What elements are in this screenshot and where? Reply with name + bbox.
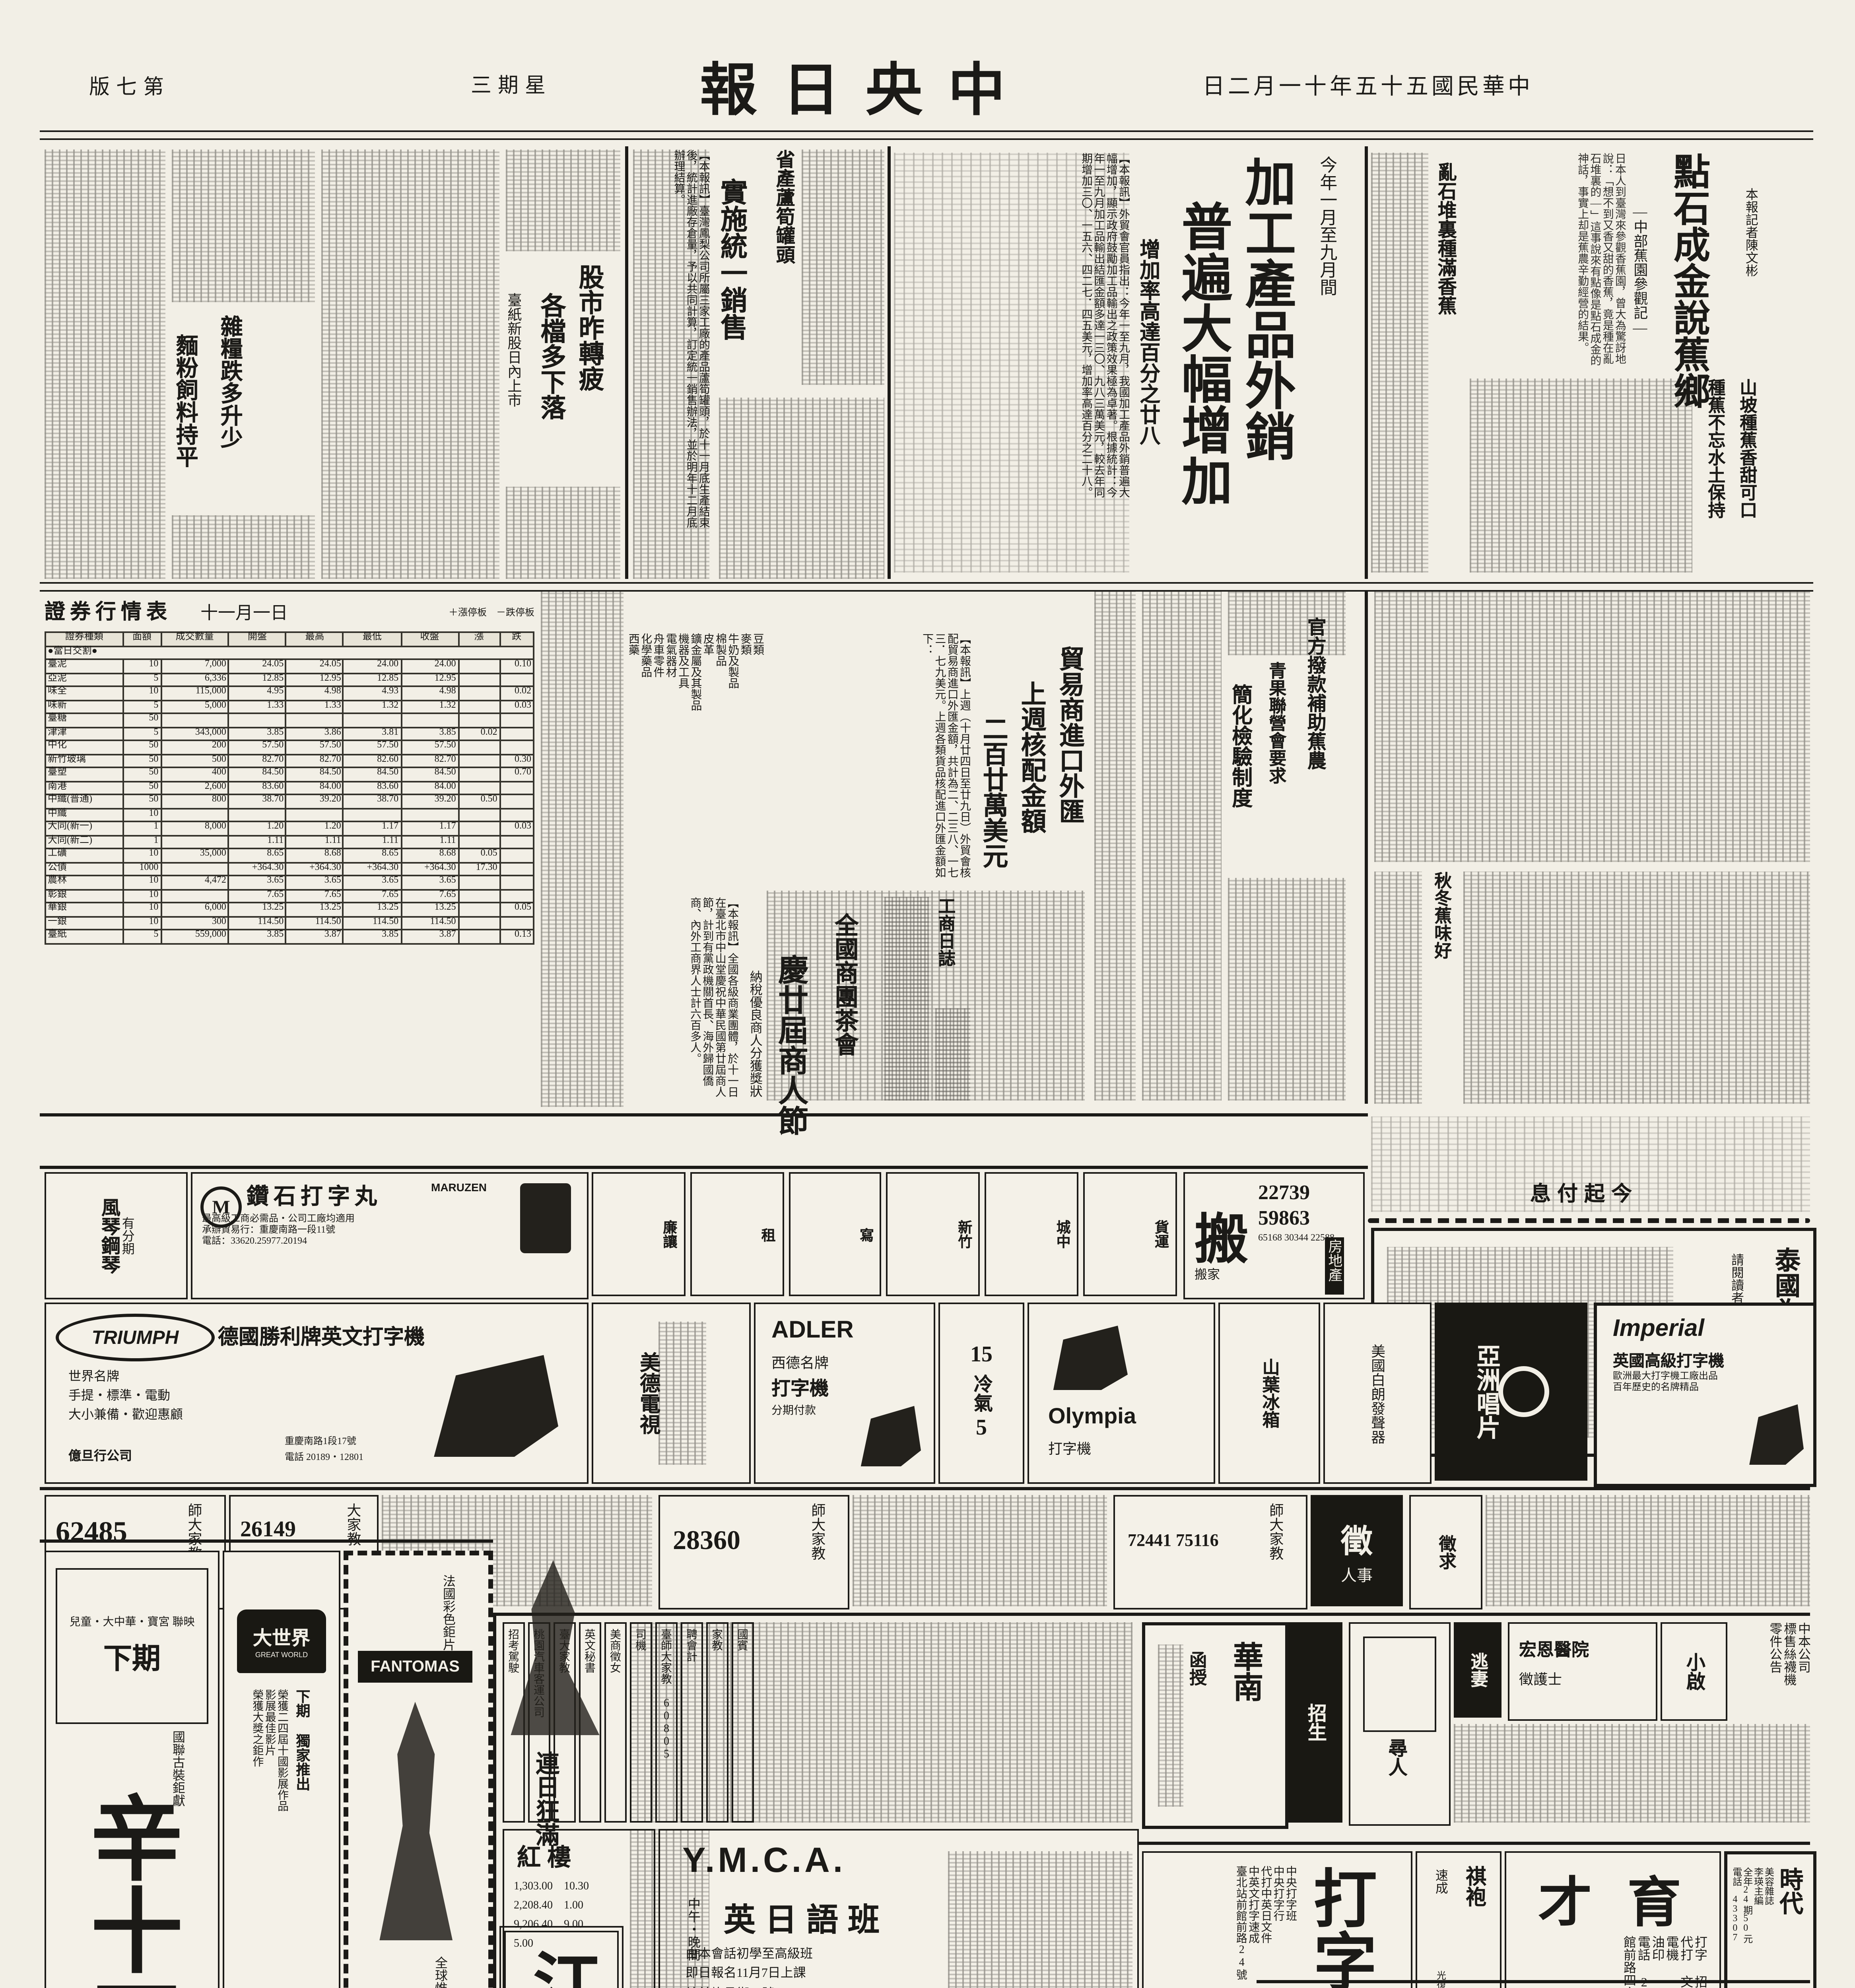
xin-theaters: 兒童・大中華・寶宮 聯映 bbox=[70, 1614, 195, 1630]
imperial-brand: Imperial bbox=[1613, 1315, 1704, 1342]
stockmkt-title-1: 股市昨轉疲 bbox=[573, 264, 601, 429]
band-rule bbox=[40, 1487, 1810, 1489]
texture bbox=[1228, 592, 1346, 655]
asparagus-texture-3 bbox=[802, 149, 884, 385]
texture bbox=[1158, 1644, 1183, 1807]
fridge-title: 山葉冰箱 bbox=[1259, 1320, 1279, 1466]
zhaosheng-label: 招生 bbox=[1305, 1675, 1326, 1770]
olympia-brand: Olympia bbox=[1048, 1403, 1136, 1428]
list-item: 承辦貿易行：重慶南路一段11號 bbox=[202, 1227, 514, 1238]
texture bbox=[1374, 872, 1422, 1104]
banana-texture-2 bbox=[1470, 379, 1692, 573]
banana-byline: 本報記者陳文彬 bbox=[1743, 188, 1758, 363]
table-header-cell: 收盤 bbox=[401, 632, 458, 646]
speaker-title: 美國白朗發聲器 bbox=[1369, 1317, 1385, 1470]
export-title-1: 加工產品外銷 bbox=[1237, 156, 1294, 534]
movers-phone-2: 59863 bbox=[1258, 1206, 1310, 1231]
list-item: 中央打字行 bbox=[1271, 1866, 1284, 1988]
missing-person-photo bbox=[1363, 1637, 1436, 1732]
banana-subhead-4: 官方撥款補助蕉農 bbox=[1304, 617, 1326, 830]
list-item: 電話：33620.25977.20194 bbox=[202, 1238, 514, 1250]
list-item: 代打中英日文件 bbox=[1259, 1866, 1271, 1988]
table-header-cell: 最高 bbox=[286, 632, 343, 646]
export-title-2: 普遍大幅增加 bbox=[1174, 200, 1231, 579]
table-row: 一銀10300114.50114.50114.50114.50 bbox=[45, 916, 534, 930]
list-item: 寫 bbox=[789, 1172, 882, 1296]
texture bbox=[884, 897, 929, 1101]
table-row: 公債1000+364.30+364.30+364.30+364.3017.30 bbox=[45, 862, 534, 876]
list-item: 李瑛主編 bbox=[1750, 1867, 1761, 1988]
typewriter-icon bbox=[1045, 1320, 1128, 1390]
aircon-n2: 5 bbox=[976, 1417, 987, 1442]
table-row: 味新55,0001.331.331.321.320.03 bbox=[45, 700, 534, 713]
world-lines: 榮獲二四屆十國影展作品影展最佳影片榮獲大獎之鉅作 bbox=[237, 1689, 288, 1975]
table-header-cell: 開盤 bbox=[229, 632, 286, 646]
grains-title-2: 麵粉飼料持平 bbox=[172, 334, 197, 509]
texture bbox=[1374, 592, 1810, 862]
grains-title-1: 雜糧跌多升少 bbox=[216, 315, 241, 490]
list-item: 廉讓 bbox=[592, 1172, 685, 1296]
texture bbox=[1486, 1495, 1810, 1606]
movie-ad-xin: 兒童・大中華・寶宮 聯映 下期 國聯古裝鉅獻 辛十四娘 bbox=[45, 1551, 219, 1988]
banana-subhead-3: 種蕉不忘水土保持 bbox=[1705, 379, 1725, 550]
movers-tag: 搬家 bbox=[1195, 1266, 1220, 1283]
band-rule bbox=[1257, 1980, 1810, 1982]
triumph-phone: 電話 20189・12801 bbox=[285, 1454, 363, 1465]
hongen-ad: 宏恩醫院 徵護士 bbox=[1508, 1622, 1657, 1721]
table-row: 新竹玻璃5050082.7082.7082.6082.700.30 bbox=[45, 754, 534, 767]
table-header-cell: 漲 bbox=[458, 632, 500, 646]
table-row: 大同(新一)18,0001.201.201.171.170.03 bbox=[45, 821, 534, 835]
list-item: 世界名牌 bbox=[68, 1368, 183, 1387]
table-row: 亞泥56,33612.8512.9512.8512.95 bbox=[45, 673, 534, 686]
table-header-cell: 成交數量 bbox=[161, 632, 228, 646]
classified-tutor-4: 師大家教 72441 75116 bbox=[1113, 1495, 1307, 1609]
tutor-label: 師大家教 bbox=[810, 1503, 826, 1598]
asparagus-texture-2 bbox=[719, 398, 884, 579]
stockmkt-texture bbox=[506, 487, 620, 579]
list-item: 影展最佳影片 bbox=[263, 1689, 275, 1975]
stock-table: 證券種類面額成交數量開盤最高最低收盤漲跌 ●當日交割●臺泥107,00024.0… bbox=[45, 631, 534, 944]
adler-brand: ADLER bbox=[771, 1317, 854, 1344]
shidai-ad: 時代 美容雜誌李瑛主編全年24期50元電話 43307 bbox=[1724, 1851, 1816, 1988]
table-row: 中化5020057.5057.5057.5057.50 bbox=[45, 740, 534, 754]
ad-imperial: Imperial 英國高級打字機 歐洲最大打字機工廠出品百年歷史的名牌精品 bbox=[1594, 1303, 1816, 1487]
texture bbox=[630, 1622, 1132, 1823]
table-row: 中纖10 bbox=[45, 808, 534, 821]
maruzen-brand: MARUZEN bbox=[431, 1183, 487, 1194]
forex-intro: 【本報訊】上週（十月廿四日至廿九日）外貿會核配貿易商進口外匯金額，共計為二、二三… bbox=[767, 633, 970, 887]
maruzen-lines: 最高級工商必需品・公司工廠均適用承辦貿易行：重慶南路一段11號電話：33620.… bbox=[202, 1215, 514, 1249]
figure-silhouette bbox=[506, 1560, 604, 1735]
banana-subhead-5: 秋冬蕉味好 bbox=[1432, 872, 1451, 1008]
list-item: 城中 bbox=[985, 1172, 1078, 1296]
maruzen-title: 鑽石打字丸 bbox=[247, 1180, 382, 1212]
table-row: 津津5343,0003.853.863.813.850.02 bbox=[45, 727, 534, 740]
movers-realestate: 房地產 bbox=[1325, 1237, 1344, 1295]
list-item: 全年24期50元 bbox=[1740, 1867, 1750, 1988]
triumph-title: 德國勝利牌英文打字機 bbox=[218, 1320, 425, 1350]
texture bbox=[541, 592, 624, 1107]
stock-table-note: ＋漲停板 －跌停板 bbox=[449, 604, 534, 619]
banana-subhead-2: 山坡種蕉香甜可口 bbox=[1737, 379, 1756, 550]
texture bbox=[1228, 878, 1346, 1101]
masthead-rule bbox=[40, 130, 1813, 140]
list-item: 中央打字班 bbox=[1284, 1866, 1296, 1988]
table-row: 臺糖50 bbox=[45, 713, 534, 727]
table-row: 工礦1035,0008.658.688.658.680.05 bbox=[45, 848, 534, 862]
hongen-sub: 徵護士 bbox=[1519, 1668, 1562, 1689]
world-logo: 大世界 GREAT WORLD bbox=[237, 1609, 326, 1673]
band-rule bbox=[40, 582, 1813, 592]
classified-tutor-3: 師大家教 28360 bbox=[658, 1495, 849, 1609]
export-kicker: 今年一月至九月間 bbox=[1317, 156, 1336, 350]
texture bbox=[948, 1851, 1132, 1988]
merchants-title-2: 慶廿屆商人節 bbox=[773, 954, 807, 1193]
texture bbox=[1142, 592, 1222, 1101]
texture bbox=[1094, 592, 1136, 1101]
triumph-logo: TRIUMPH bbox=[56, 1314, 215, 1361]
piano-ad-note: 有分期 bbox=[120, 1204, 134, 1268]
list-item: 手提・標準・電動 bbox=[68, 1387, 183, 1406]
texture bbox=[935, 1008, 970, 1101]
table-row: 南港502,60083.6084.0083.6084.00 bbox=[45, 781, 534, 794]
ad-fridge: 山葉冰箱 bbox=[1218, 1303, 1320, 1484]
taoqi-ad: 逃妻 bbox=[1454, 1622, 1501, 1718]
export-subtitle: 增加率高達百分之廿八 bbox=[1136, 239, 1159, 493]
ad-adler: ADLER 西德名牌 打字機 分期付款 bbox=[754, 1303, 935, 1484]
ymca-sub: 英日語班 bbox=[724, 1894, 889, 1940]
xunren-ad: 尋人 bbox=[1349, 1622, 1451, 1826]
seek-label: 徵求 bbox=[1436, 1512, 1455, 1592]
fruit-title-2: 簡化檢驗制度 bbox=[1228, 684, 1251, 862]
wavy-rule bbox=[1368, 1218, 1810, 1223]
qipao-ad: 祺袍 速成 光復南路13巷 bbox=[1416, 1851, 1501, 1988]
merchants-title-1: 全國商團茶會 bbox=[830, 913, 857, 1101]
adler-line-2: 打字機 bbox=[771, 1374, 829, 1401]
ad-piano: 風琴鋼琴 有分期 bbox=[45, 1172, 188, 1299]
world-logo-en: GREAT WORLD bbox=[255, 1651, 308, 1659]
page-weekday: 三期星 bbox=[471, 68, 552, 99]
column-rule bbox=[1365, 592, 1367, 1104]
list-item: 臺北站前館前路24號 bbox=[1234, 1866, 1246, 1988]
table-row: 農林104,4723.653.653.653.65 bbox=[45, 876, 534, 889]
zhaosheng-ad: 招生 bbox=[1288, 1622, 1342, 1823]
texture bbox=[172, 149, 315, 302]
forex-title-1: 貿易商進口外匯 bbox=[1053, 646, 1082, 868]
list-item: 租 bbox=[690, 1172, 783, 1296]
stock-table-block: 證券行情表 十一月一日 ＋漲停板 －跌停板 證券種類面額成交數量開盤最高最低收盤… bbox=[45, 595, 534, 1107]
asparagus-title-1: 省產蘆筍罐頭 bbox=[773, 149, 794, 296]
texture bbox=[321, 149, 499, 579]
record-icon bbox=[1499, 1366, 1550, 1417]
table-section-row: ●當日交割● bbox=[45, 646, 534, 659]
texture bbox=[1371, 1116, 1810, 1212]
band-rule bbox=[1139, 1842, 1810, 1845]
texture bbox=[853, 1495, 1107, 1606]
xiaoqi-label: 小啟 bbox=[1683, 1640, 1705, 1703]
movers-big: 搬 bbox=[1195, 1196, 1249, 1274]
table-header-cell: 面額 bbox=[123, 632, 161, 646]
typewriter-icon bbox=[1743, 1401, 1804, 1465]
merchants-sub: 納稅優良商人分獲獎狀 bbox=[748, 970, 762, 1161]
table-row: 彰銀107.657.657.657.65 bbox=[45, 889, 534, 903]
ad-small-strip: 廉讓租寫新竹城中貨運 bbox=[592, 1172, 1177, 1296]
ad-tv: 美德電視 bbox=[592, 1303, 751, 1484]
xunren-label: 尋人 bbox=[1385, 1738, 1407, 1808]
tutor-phone: 72441 75116 bbox=[1128, 1532, 1219, 1551]
world-logo-cn: 大世界 bbox=[253, 1624, 310, 1651]
movie-ad-world: 大世界 GREAT WORLD 下期 獨家推出 榮獲二四屆十國影展作品影展最佳影… bbox=[223, 1551, 340, 1988]
olympia-line: 打字機 bbox=[1048, 1438, 1091, 1458]
table-row: 大同(新二)11.111.111.111.11 bbox=[45, 835, 534, 848]
list-item: 大小兼備・歡迎惠顧 bbox=[68, 1406, 183, 1425]
list-item: 貨運 bbox=[1084, 1172, 1177, 1296]
asparagus-body: 【本報訊】臺灣鳳梨公司所屬三家工廠的產品蘆筍罐頭，於十一月底生產結束後，統計進廠… bbox=[633, 149, 709, 531]
list-item: 零件公告 bbox=[1768, 1622, 1782, 1823]
taoqi-label: 逃妻 bbox=[1468, 1635, 1487, 1705]
asparagus-title-2: 實施統一銷售 bbox=[716, 178, 746, 379]
asia-title: 亞洲唱片 bbox=[1472, 1325, 1499, 1458]
table-header-row: 證券種類面額成交數量開盤最高最低收盤漲跌 bbox=[45, 632, 534, 646]
aircon-n1: 15 bbox=[970, 1344, 993, 1369]
stock-table-date: 十一月一日 bbox=[200, 604, 288, 623]
triumph-addr: 重慶南路1段17號 bbox=[285, 1438, 356, 1449]
dazi-lines: 中央打字班中央打字行代打中英日文件中英文打字速成臺北站前館前路24號 bbox=[1156, 1866, 1296, 1988]
list-item: 電話 43307 bbox=[1729, 1867, 1740, 1988]
movie-ad-jianghan: 連日狂滿 江漢風雲 bbox=[490, 1551, 624, 1988]
ad-maruzen: M 鑽石打字丸 MARUZEN 最高級工商必需品・公司工廠均適用承辦貿易行：重慶… bbox=[191, 1172, 589, 1299]
page-edition: 版七第 bbox=[89, 70, 170, 100]
movers-phone-1: 22739 bbox=[1258, 1180, 1310, 1206]
marquee-border: 江漢風雲 bbox=[499, 1926, 624, 1988]
band-rule bbox=[40, 1166, 1368, 1169]
ad-speaker: 美國白朗發聲器 bbox=[1323, 1303, 1432, 1484]
texture bbox=[45, 149, 165, 579]
hiring-big: 徵 bbox=[1341, 1516, 1373, 1562]
xiaoqi-ad: 小啟 bbox=[1661, 1622, 1727, 1721]
list-item: 百年歷史的名牌精品 bbox=[1613, 1384, 1740, 1396]
imperial-title: 英國高級打字機 bbox=[1613, 1347, 1724, 1371]
ad-movers: 搬 22739 59863 65168 30344 22588 房地產 搬家 bbox=[1183, 1172, 1365, 1299]
list-item: 最高級工商必需品・公司工廠均適用 bbox=[202, 1215, 514, 1227]
list-item: 中英文打字速成 bbox=[1247, 1866, 1259, 1988]
dazi-title: 打字 bbox=[1303, 1866, 1374, 1988]
stock-table-title: 證券行情表 bbox=[45, 600, 172, 623]
list-item: 中本公司 bbox=[1796, 1622, 1810, 1823]
huanan-title: 華南 bbox=[1228, 1641, 1262, 1769]
texture bbox=[172, 515, 315, 579]
ad-triumph: TRIUMPH 德國勝利牌英文打字機 世界名牌手提・標準・電動大小兼備・歡迎惠顧… bbox=[45, 1303, 589, 1484]
stockmkt-sub: 臺紙新股日內上市 bbox=[506, 293, 522, 477]
stockmkt-title-2: 各檔多下落 bbox=[534, 293, 563, 458]
fantomas-logo: FANTOMAS bbox=[358, 1651, 472, 1683]
tutor-phone: 62485 bbox=[56, 1516, 127, 1549]
ad-asia-records: 亞洲唱片 bbox=[1435, 1303, 1587, 1481]
table-row: 中纖(普通)5080038.7039.2038.7039.200.50 bbox=[45, 794, 534, 808]
shidai-title: 時代 bbox=[1775, 1867, 1802, 1947]
adler-line-3: 分期付款 bbox=[771, 1403, 816, 1419]
list-item: 新竹 bbox=[887, 1172, 980, 1296]
huanan-ad: 華南 函授 bbox=[1142, 1622, 1288, 1829]
band-rule bbox=[493, 1613, 1810, 1615]
table-header-cell: 證券種類 bbox=[45, 632, 123, 646]
diary-title: 工商日誌 bbox=[935, 897, 955, 999]
classified-hiring: 徵 人事 bbox=[1311, 1495, 1403, 1606]
merchants-body: 【本報訊】全國各級商業團體，於十一日在臺北市中山堂慶祝中華民國第廿屆商人節，計到… bbox=[633, 897, 738, 1101]
export-body: 【本報訊】外貿會官員指出：今年一至九月，我國加工產品外銷普遍大幅增加，顯示政府鼓… bbox=[894, 153, 1129, 499]
texture bbox=[506, 149, 620, 251]
qipao-line: 速成 bbox=[1433, 1869, 1447, 1964]
imperial-lines: 歐洲最大打字機工廠出品百年歷史的名牌精品 bbox=[1613, 1373, 1740, 1396]
table-row: 臺泥107,00024.0524.0524.0024.000.10 bbox=[45, 659, 534, 673]
typewriter-icon bbox=[854, 1403, 921, 1466]
triumph-dealer: 億旦行公司 bbox=[68, 1447, 132, 1465]
masthead: 報日央中 bbox=[643, 45, 1088, 127]
column-rule bbox=[888, 146, 890, 579]
band-rule bbox=[40, 1540, 493, 1543]
typewriter-icon bbox=[412, 1355, 558, 1457]
table-row: 臺塑5040084.5084.5084.5084.500.70 bbox=[45, 767, 534, 781]
list-item: 美容雜誌 bbox=[1761, 1867, 1772, 1988]
texture bbox=[630, 1829, 709, 1988]
shidai-lines: 美容雜誌李瑛主編全年24期50元電話 43307 bbox=[1737, 1867, 1772, 1988]
list-item: 標售絲襪機 bbox=[1781, 1622, 1796, 1823]
world-kicker: 下期 獨家推出 bbox=[294, 1689, 310, 1832]
classified-seek: 徵求 bbox=[1409, 1495, 1482, 1609]
banana-body: 日本人到臺灣來參觀香蕉園，曾大為驚訝地說：「想不到又香又甜的香蕉，竟是種在亂石堆… bbox=[1470, 153, 1626, 366]
hongen-title: 宏恩醫院 bbox=[1519, 1637, 1589, 1662]
huanan-sub: 函授 bbox=[1187, 1651, 1206, 1730]
newspaper-page: 版七第 三期星 報日央中 日二月一十年五十五國民華中 點石成金說蕉鄉 —中部蕉園… bbox=[0, 0, 1855, 1988]
yucai-ad: 才育 打字 招生代打 文件電機油印電話 25416館前路四之五號 bbox=[1505, 1851, 1721, 1988]
tutor-phone: 28360 bbox=[673, 1525, 740, 1557]
forex-title-2: 上週核配金額 bbox=[1015, 681, 1043, 872]
product-icon bbox=[520, 1183, 571, 1253]
xin-title: 辛十四娘 bbox=[81, 1791, 173, 1988]
issue-date: 日二月一十年五十五國民華中 bbox=[1202, 70, 1533, 102]
banana-subhead-1: 亂石堆裏種滿香蕉 bbox=[1435, 162, 1456, 359]
list-item: 榮獲二四屆十國影展作品 bbox=[276, 1689, 288, 1975]
hiring-sub: 人事 bbox=[1341, 1562, 1373, 1586]
figure-silhouette bbox=[371, 1702, 460, 1940]
tutor-label: 師大家教 bbox=[1268, 1503, 1284, 1598]
dazi-ad: 打字 中央打字班中央打字行代打中英日文件中英文打字速成臺北站前館前路24號 bbox=[1142, 1851, 1412, 1988]
band-rule bbox=[40, 1113, 1368, 1116]
table-row: 華銀106,00013.2513.2513.2513.250.05 bbox=[45, 903, 534, 916]
forex-title-3: 二百廿萬美元 bbox=[977, 716, 1005, 907]
qipao-addr: 光復南路13巷 bbox=[1433, 1971, 1444, 1988]
xin-kicker: 下期 bbox=[103, 1637, 161, 1678]
column-rule bbox=[1365, 146, 1367, 579]
fantomas-line: 全球惟一取材最美出色的超大型巨片 bbox=[390, 1956, 447, 1988]
list-item: 歐洲最大打字機工廠出品 bbox=[1613, 1373, 1740, 1384]
texture bbox=[659, 1322, 707, 1465]
texture bbox=[1463, 872, 1810, 1104]
table-header-cell: 跌 bbox=[500, 632, 534, 646]
table-row: 味全10115,0004.954.984.934.980.02 bbox=[45, 686, 534, 700]
piano-ad-title: 風琴鋼琴 bbox=[98, 1185, 120, 1287]
qipao-title: 祺袍 bbox=[1462, 1866, 1485, 1945]
jianghan-kicker: 連日狂滿 bbox=[531, 1751, 558, 1916]
yucai-title: 才育 bbox=[1538, 1859, 1716, 1937]
adler-line-1: 西德名牌 bbox=[771, 1352, 829, 1373]
triumph-lines: 世界名牌手提・標準・電動大小兼備・歡迎惠顧 bbox=[68, 1368, 183, 1425]
ad-olympia: Olympia 打字機 bbox=[1028, 1303, 1215, 1484]
list-item: 榮獲大獎之鉅作 bbox=[251, 1689, 263, 1975]
jianghan-title: 江漢風雲 bbox=[525, 1948, 595, 1988]
ad-aircon: 15 冷氣 5 bbox=[938, 1303, 1024, 1484]
fruit-title-1: 青果聯營會要求 bbox=[1266, 662, 1286, 827]
tv-ad-title: 美德電視 bbox=[636, 1322, 659, 1465]
table-header-cell: 最低 bbox=[344, 632, 401, 646]
table-row: 臺紙5559,0003.853.873.853.870.13 bbox=[45, 930, 534, 943]
aircon-title: 冷氣 bbox=[971, 1369, 992, 1417]
movie-ad-fantomas: 法國彩色鉅片 FANTOMAS 全球惟一取材最美出色的超大型巨片 千面金剛 bbox=[344, 1551, 493, 1988]
column-rule bbox=[625, 146, 627, 579]
zhongben-notice: 中本公司標售絲襪機零件公告 bbox=[1731, 1622, 1810, 1823]
banana-body-texture bbox=[1371, 153, 1428, 573]
xin-header: 兒童・大中華・寶宮 聯映 下期 bbox=[56, 1568, 208, 1724]
